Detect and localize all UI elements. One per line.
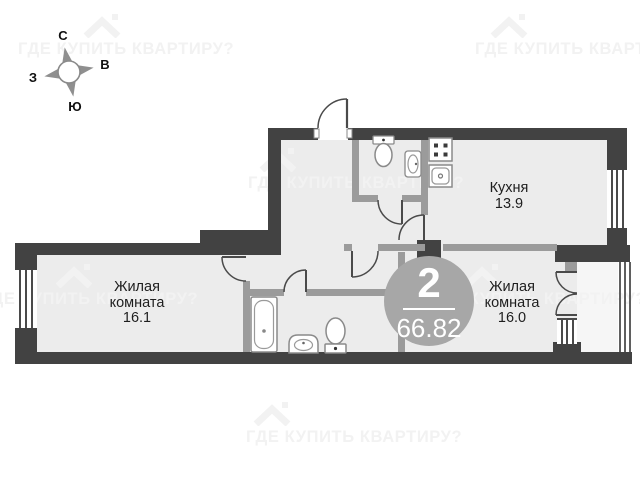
house-watermark-icon — [250, 398, 294, 426]
room-name: Жилая комната — [85, 280, 189, 311]
watermark-text: ГДЕ КУПИТЬ КВАРТИРУ? — [246, 428, 462, 446]
total-area: 66.82 — [396, 315, 461, 341]
watermark-text: ГДЕ КУПИТЬ КВАРТИРУ? — [18, 40, 234, 58]
balcony-glazing — [629, 262, 631, 352]
compass-east-label: В — [98, 57, 112, 72]
compass-south-label: Ю — [68, 99, 82, 114]
wall-segment — [555, 245, 630, 262]
house-watermark-icon — [487, 10, 531, 38]
watermark: ГДЕ КУПИТЬ КВАРТИРУ? — [246, 398, 462, 447]
partition-wall — [243, 281, 250, 352]
partition-wall — [443, 244, 557, 251]
partition-wall — [565, 262, 577, 272]
wall-segment — [15, 328, 37, 352]
floor-plan-canvas: ГДЕ КУПИТЬ КВАРТИРУ? ГДЕ КУПИТЬ КВАРТИРУ… — [0, 0, 640, 480]
partition-wall — [344, 244, 352, 251]
room-count: 2 — [417, 262, 440, 304]
wall-segment — [607, 228, 627, 245]
watermark: ГДЕ КУПИТЬ КВАРТИРУ? — [18, 10, 234, 59]
watermark: ГДЕ КУПИТЬ КВАРТИРУ? — [475, 10, 640, 59]
wall-segment — [268, 128, 281, 255]
entrance-door-arc — [314, 99, 352, 138]
room-name: Кухня — [457, 181, 561, 197]
partition-wall — [378, 244, 425, 251]
partition-wall — [352, 195, 378, 202]
window — [15, 270, 37, 328]
watermark-text: ГДЕ КУПИТЬ КВАРТИРУ? — [475, 40, 640, 58]
room-label-kitchen: Кухня 13.9 — [429, 181, 589, 212]
balcony-glazing — [619, 262, 621, 352]
room-area: 13.9 — [495, 196, 523, 212]
partition-wall — [250, 289, 284, 296]
window — [607, 170, 627, 228]
room-label-living-room-1: Жилая комната 16.1 — [57, 280, 217, 327]
partition-wall — [421, 140, 428, 215]
compass-north-label: С — [56, 28, 70, 43]
compass-west-label: З — [26, 70, 40, 85]
room-area: 16.1 — [123, 310, 151, 326]
wall-segment — [15, 352, 632, 364]
house-watermark-icon — [80, 10, 124, 38]
wall-segment — [348, 128, 627, 140]
wall-segment — [607, 140, 627, 170]
room-name: Жилая комната — [460, 280, 564, 311]
badge-divider — [403, 308, 455, 310]
wall-segment — [15, 243, 200, 255]
room-area: 16.0 — [498, 310, 526, 326]
partition-wall — [352, 140, 359, 202]
apartment-summary-badge: 2 66.82 — [384, 256, 474, 346]
balcony-glazing — [624, 262, 626, 352]
